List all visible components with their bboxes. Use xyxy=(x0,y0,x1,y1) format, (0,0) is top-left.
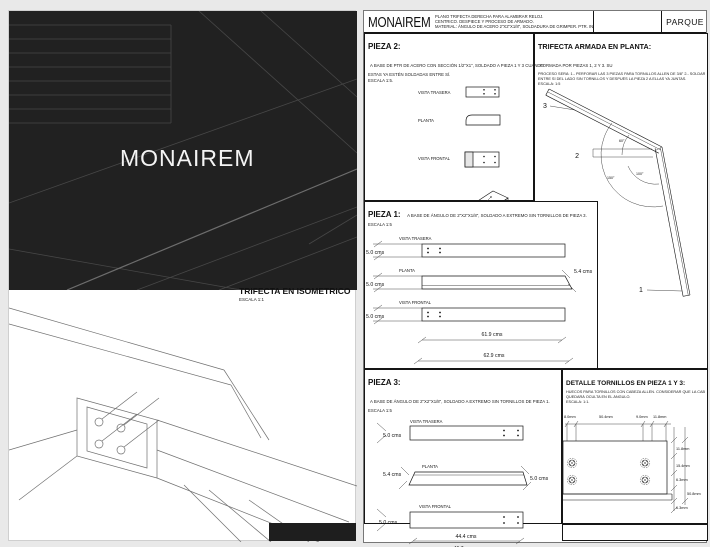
title-brand-cell: MONAIREM xyxy=(364,11,434,33)
pieza3-dim-planta-right: 5.0 cms xyxy=(530,476,549,482)
part-label-3: 3 xyxy=(543,103,547,110)
angle-arcs xyxy=(601,123,663,207)
pieza3-vista-trasera: VISTA TRASERA 5.0 cms xyxy=(377,419,523,443)
pieza2-desc-1: A BASE DE PTR DE ACERO CON SECCIÓN 1/2"X… xyxy=(370,63,544,68)
detalle-right-dims: 11.8mm 15.4mm 6.3mm 50.8mm 6.3mm xyxy=(671,427,701,513)
pieza2-vista-trasera: VISTA TRASERA xyxy=(418,87,499,97)
trifecta-desc-1: FORMADA POR PIEZAS 1, 2 Y 3. SU xyxy=(540,63,612,68)
pieza3-planta-label: PLANTA xyxy=(422,464,438,469)
title-project-cell: PARQUE xyxy=(661,11,708,33)
pieza1-vista-trasera-label: VISTA TRASERA xyxy=(399,236,432,241)
detalle-drawing: 8.0mm 50.4mm 9.0mm 11.8mm xyxy=(563,405,709,529)
part-label-2: 2 xyxy=(575,153,579,160)
pieza3-vista-frontal: VISTA FRONTAL 5.0 cms xyxy=(377,504,523,531)
detalle-dim-right-3: 6.3mm xyxy=(676,478,688,482)
bar-1 xyxy=(655,147,690,296)
trifecta-title: TRIFECTA ARMADA EN PLANTA: xyxy=(538,42,651,51)
pieza3-dim-len1: 44.4 cms xyxy=(455,534,476,540)
detalle-header: DETALLE TORNILLOS EN PIEZA 1 Y 3: HUECOS… xyxy=(563,370,707,405)
detalle-dim-right-1: 11.8mm xyxy=(676,447,689,451)
bar-3 xyxy=(546,89,662,153)
pieza2-planta-label: PLANTA xyxy=(418,118,434,123)
pieza2-vista-frontal-label: VISTA FRONTAL xyxy=(418,156,451,161)
detalle-top-dims: 8.0mm 50.4mm 9.0mm 11.8mm xyxy=(564,415,671,441)
detalle-plate xyxy=(563,441,672,500)
detalle-dim-top-2: 50.4mm xyxy=(599,415,613,419)
document-canvas: MONAIREM TRIFECTA EN ISOMETRICO ESCALA 1… xyxy=(0,0,710,547)
footer-box xyxy=(562,524,708,541)
pieza1-dim-trasera: 5.0 cms xyxy=(366,250,385,256)
note-line-3: MATERIAL: ÁNGULO DE ACERO 2"X2"X1/8", SO… xyxy=(435,24,593,29)
pieza2-title: PIEZA 2: xyxy=(368,42,401,51)
pieza1-desc: A BASE DE ÁNGULO DE 2"X2"X1/8", SOLDADO … xyxy=(407,213,587,218)
pieza1-views-drawing: VISTA TRASERA 5.0 cms PLANTA 5. xyxy=(365,228,599,376)
title-notes-cell: PLANO TRIFECTA DERECHA PARA ALAMBRAR REL… xyxy=(434,11,593,33)
angle-60: 60° xyxy=(619,139,625,143)
pieza3-dim-trasera: 5.0 cms xyxy=(383,433,402,439)
pieza3-vista-trasera-label: VISTA TRASERA xyxy=(410,419,443,424)
pieza1-dim-frontal: 5.0 cms xyxy=(366,314,385,320)
pieza1-dim-len2: 62.9 cms xyxy=(483,353,504,359)
pieza1-vista-frontal-label: VISTA FRONTAL xyxy=(399,300,432,305)
pieza2-header: PIEZA 2: A BASE DE PTR DE ACERO CON SECC… xyxy=(365,34,533,83)
angle-labels: 60° 100° 150° xyxy=(607,139,644,180)
pieza3-dim-frontal: 5.0 cms xyxy=(379,520,398,526)
detalle-dim-right-4: 50.8mm xyxy=(687,492,701,496)
title-block: MONAIREM PLANO TRIFECTA DERECHA PARA ALA… xyxy=(364,11,706,33)
section-pieza-3: PIEZA 3: A BASE DE ÁNGULO DE 2"X2"X1/8",… xyxy=(364,369,562,524)
pieza1-dim-end: 5.4 cms xyxy=(574,269,593,275)
pieza2-planta: PLANTA xyxy=(418,115,500,125)
detalle-dim-right-5: 6.3mm xyxy=(676,506,688,510)
pieza3-dim-planta-left: 5.4 cms xyxy=(383,472,402,478)
title-empty-cell xyxy=(593,11,661,33)
drawing-sheet: MONAIREM PLANO TRIFECTA DERECHA PARA ALA… xyxy=(363,10,707,543)
detalle-dim-right-2: 15.4mm xyxy=(676,464,690,468)
pieza3-planta: PLANTA 5.4 cms 5.0 cms xyxy=(383,464,549,490)
pieza3-vista-frontal-label: VISTA FRONTAL xyxy=(419,504,452,509)
cover-page: MONAIREM TRIFECTA EN ISOMETRICO ESCALA 1… xyxy=(8,10,356,541)
pieza3-header: PIEZA 3: A BASE DE ÁNGULO DE 2"X2"X1/8",… xyxy=(365,370,561,414)
pieza3-views-drawing: VISTA TRASERA 5.0 cms PLANTA 5.4 cms 5.0… xyxy=(365,414,563,547)
pieza2-vista-frontal: VISTA FRONTAL xyxy=(418,152,499,167)
cover-image: MONAIREM xyxy=(9,11,357,290)
section-pieza-2: PIEZA 2: A BASE DE PTR DE ACERO CON SECC… xyxy=(364,33,534,201)
pieza1-dim-planta: 5.0 cms xyxy=(366,282,385,288)
angle-100: 100° xyxy=(636,172,644,176)
part-label-1: 1 xyxy=(639,287,643,294)
pieza3-title: PIEZA 3: xyxy=(368,378,401,387)
pieza2-vista-trasera-label: VISTA TRASERA xyxy=(418,90,451,95)
pieza1-length-dims: 61.9 cms 62.9 cms xyxy=(414,332,573,364)
dark-strip xyxy=(269,523,356,541)
pieza1-vista-trasera: VISTA TRASERA 5.0 cms xyxy=(366,236,565,260)
trifecta-desc-3: ENTRE SÍ DEL LADO SIN TORNILLOS Y DESPUÉ… xyxy=(538,77,705,82)
pieza1-dim-len1: 61.9 cms xyxy=(481,332,502,338)
brand-name: MONAIREM xyxy=(368,14,430,31)
project-name: PARQUE xyxy=(662,17,708,27)
pieza1-planta-label: PLANTA xyxy=(399,268,415,273)
pieza1-planta: PLANTA 5.0 cms 5.4 cms xyxy=(366,268,593,292)
detalle-title: DETALLE TORNILLOS EN PIEZA 1 Y 3: xyxy=(566,380,685,387)
detalle-dim-top-1: 8.0mm xyxy=(564,415,576,419)
cover-louvers xyxy=(9,25,171,123)
angle-150: 150° xyxy=(607,176,615,180)
pieza1-title: PIEZA 1: xyxy=(368,210,401,219)
table-plane-lines xyxy=(9,308,269,450)
section-detalle-tornillos: DETALLE TORNILLOS EN PIEZA 1 Y 3: HUECOS… xyxy=(562,369,708,524)
cover-title: MONAIREM xyxy=(120,145,255,172)
detalle-dim-top-3: 9.0mm xyxy=(636,415,648,419)
section-pieza-1: PIEZA 1: A BASE DE ÁNGULO DE 2"X2"X1/8",… xyxy=(364,201,598,369)
pieza1-header: PIEZA 1: A BASE DE ÁNGULO DE 2"X2"X1/8",… xyxy=(365,202,597,228)
trifecta-header: TRIFECTA ARMADA EN PLANTA: FORMADA POR P… xyxy=(535,34,707,87)
detalle-dim-top-4: 11.8mm xyxy=(653,415,666,419)
bracket-box xyxy=(77,398,157,478)
bar-2-plan-lines xyxy=(593,149,653,157)
trifecta-isometric-drawing xyxy=(9,290,357,542)
pieza1-vista-frontal: VISTA FRONTAL 5.0 cms xyxy=(366,300,565,324)
pieza3-desc: A BASE DE ÁNGULO DE 2"X2"X1/8", SOLDADO … xyxy=(370,399,550,404)
pieza3-length-dims: 44.4 cms 46.7 cms xyxy=(405,534,529,547)
